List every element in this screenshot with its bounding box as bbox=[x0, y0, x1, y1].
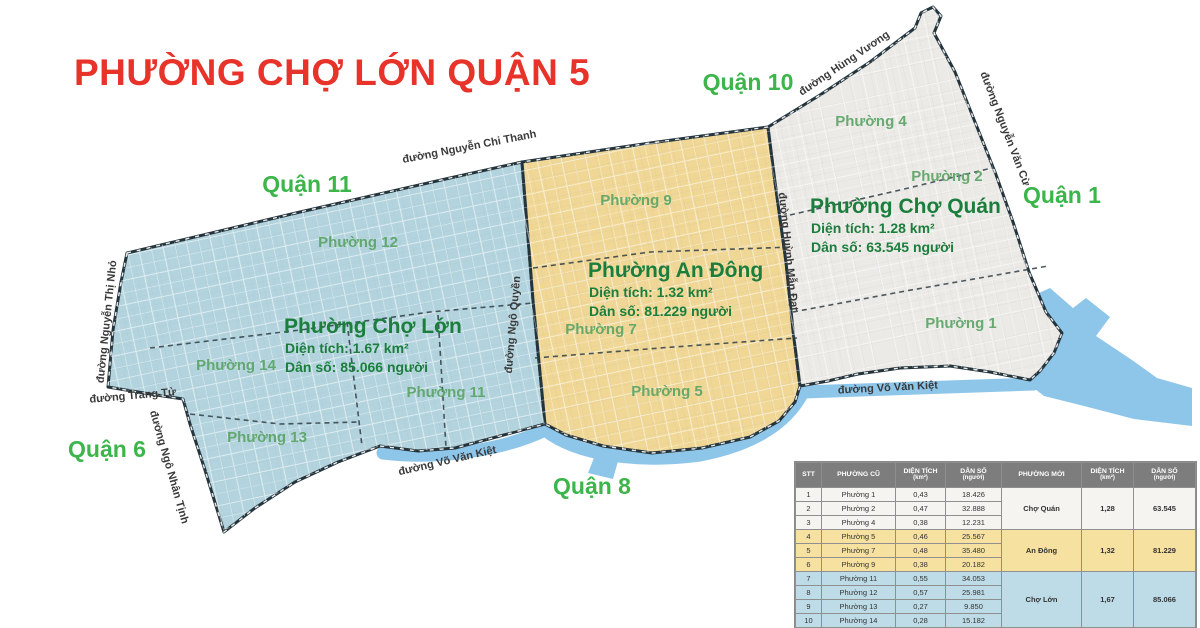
cell-area: 0,43 bbox=[896, 488, 946, 502]
cell-population: 25.567 bbox=[946, 530, 1002, 544]
cell-stt: 10 bbox=[796, 614, 822, 628]
cell-area: 0,48 bbox=[896, 544, 946, 558]
ward-label-phuong-7: Phường 7 bbox=[565, 321, 637, 338]
header-area-old: DIỆN TÍCH(km²) bbox=[896, 463, 946, 488]
header-population-old: DÂN SỐ(người) bbox=[946, 463, 1002, 488]
cell-stt: 7 bbox=[796, 572, 822, 586]
cell-new-population-cho-lon: 85.066 bbox=[1134, 572, 1196, 628]
ward-label-phuong-4: Phường 4 bbox=[835, 113, 907, 130]
infographic-canvas: đường Nguyễn Chi Thanh đường Hùng Vương … bbox=[0, 0, 1200, 620]
ward-label-phuong-1: Phường 1 bbox=[925, 315, 997, 332]
cell-population: 25.981 bbox=[946, 586, 1002, 600]
region-population: Dân số: 63.545 người bbox=[811, 239, 954, 255]
cell-population: 12.231 bbox=[946, 516, 1002, 530]
region-area: Diện tích: 1.32 km² bbox=[589, 284, 713, 300]
region-population: Dân số: 81.229 người bbox=[589, 303, 732, 319]
district-label-quan-6: Quận 6 bbox=[68, 436, 146, 462]
cell-area: 0,46 bbox=[896, 530, 946, 544]
table-row: 1 Phường 1 0,43 18.426 Chợ Quán 1,28 63.… bbox=[796, 488, 1196, 502]
street-label-trang-tu: đường Trang Tử bbox=[89, 386, 176, 406]
page-title: PHƯỜNG CHỢ LỚN QUẬN 5 bbox=[74, 52, 590, 94]
street-label-ngo-nhan-tinh: đường Ngô Nhân Tịnh bbox=[147, 409, 191, 525]
region-area: Diện tích: 1.67 km² bbox=[285, 340, 409, 356]
cell-ward: Phường 4 bbox=[822, 516, 896, 530]
ward-label-phuong-14: Phường 14 bbox=[196, 357, 277, 374]
cell-stt: 4 bbox=[796, 530, 822, 544]
cell-stt: 8 bbox=[796, 586, 822, 600]
district-label-quan-10: Quận 10 bbox=[703, 69, 794, 95]
cell-area: 0,55 bbox=[896, 572, 946, 586]
cell-stt: 5 bbox=[796, 544, 822, 558]
cell-new-area-cho-lon: 1,67 bbox=[1082, 572, 1134, 628]
cell-population: 18.426 bbox=[946, 488, 1002, 502]
district-label-quan-11: Quận 11 bbox=[262, 171, 352, 197]
header-old-ward: PHƯỜNG CŨ bbox=[822, 463, 896, 488]
region-population: Dân số: 85.066 người bbox=[285, 359, 428, 375]
header-new-ward: PHƯỜNG MỚI bbox=[1002, 463, 1082, 488]
cell-stt: 2 bbox=[796, 502, 822, 516]
ward-label-phuong-9: Phường 9 bbox=[600, 192, 672, 209]
cell-ward: Phường 12 bbox=[822, 586, 896, 600]
cell-stt: 1 bbox=[796, 488, 822, 502]
cell-new-ward-cho-quan: Chợ Quán bbox=[1002, 488, 1082, 530]
region-area: Diện tích: 1.28 km² bbox=[811, 220, 935, 236]
header-population-new: DÂN SỐ(người) bbox=[1134, 463, 1196, 488]
cell-area: 0,47 bbox=[896, 502, 946, 516]
header-stt: STT bbox=[796, 463, 822, 488]
street-label-nguyen-chi-thanh: đường Nguyễn Chi Thanh bbox=[401, 127, 537, 166]
cell-population: 20.182 bbox=[946, 558, 1002, 572]
cell-ward: Phường 11 bbox=[822, 572, 896, 586]
cell-area: 0,38 bbox=[896, 558, 946, 572]
cell-ward: Phường 5 bbox=[822, 530, 896, 544]
cell-area: 0,27 bbox=[896, 600, 946, 614]
ward-label-phuong-12: Phường 12 bbox=[318, 234, 398, 251]
region-name: Phường Chợ Quán bbox=[810, 195, 1001, 218]
district-label-quan-1: Quận 1 bbox=[1023, 182, 1101, 208]
region-name: Phường An Đông bbox=[588, 259, 763, 282]
cell-population: 15.182 bbox=[946, 614, 1002, 628]
cell-new-area-cho-quan: 1,28 bbox=[1082, 488, 1134, 530]
cell-stt: 3 bbox=[796, 516, 822, 530]
table-row: 7 Phường 11 0,55 34.053 Chợ Lớn 1,67 85.… bbox=[796, 572, 1196, 586]
ward-label-phuong-5: Phường 5 bbox=[631, 383, 703, 400]
cell-ward: Phường 1 bbox=[822, 488, 896, 502]
header-area-new: DIỆN TÍCH(km²) bbox=[1082, 463, 1134, 488]
cell-population: 9.850 bbox=[946, 600, 1002, 614]
cell-new-area-an-dong: 1,32 bbox=[1082, 530, 1134, 572]
cell-population: 32.888 bbox=[946, 502, 1002, 516]
ward-label-phuong-13: Phường 13 bbox=[227, 429, 307, 446]
cell-area: 0,28 bbox=[896, 614, 946, 628]
table-header-row: STT PHƯỜNG CŨ DIỆN TÍCH(km²) DÂN SỐ(ngườ… bbox=[796, 463, 1196, 488]
region-name: Phường Chợ Lớn bbox=[284, 315, 462, 338]
cell-population: 34.053 bbox=[946, 572, 1002, 586]
cell-stt: 9 bbox=[796, 600, 822, 614]
cell-area: 0,57 bbox=[896, 586, 946, 600]
cell-new-ward-an-dong: An Đông bbox=[1002, 530, 1082, 572]
cell-ward: Phường 7 bbox=[822, 544, 896, 558]
cell-ward: Phường 13 bbox=[822, 600, 896, 614]
cell-ward: Phường 14 bbox=[822, 614, 896, 628]
cell-stt: 6 bbox=[796, 558, 822, 572]
table-row: 4 Phường 5 0,46 25.567 An Đông 1,32 81.2… bbox=[796, 530, 1196, 544]
cell-area: 0,38 bbox=[896, 516, 946, 530]
ward-label-phuong-2: Phường 2 bbox=[911, 168, 983, 185]
cell-new-population-an-dong: 81.229 bbox=[1134, 530, 1196, 572]
cell-ward: Phường 2 bbox=[822, 502, 896, 516]
district-label-quan-8: Quận 8 bbox=[553, 473, 631, 499]
cell-new-ward-cho-lon: Chợ Lớn bbox=[1002, 572, 1082, 628]
ward-label-phuong-11: Phường 11 bbox=[406, 384, 485, 401]
cell-new-population-cho-quan: 63.545 bbox=[1134, 488, 1196, 530]
cell-population: 35.480 bbox=[946, 544, 1002, 558]
ward-merge-summary-table: STT PHƯỜNG CŨ DIỆN TÍCH(km²) DÂN SỐ(ngườ… bbox=[795, 462, 1196, 628]
cell-ward: Phường 9 bbox=[822, 558, 896, 572]
